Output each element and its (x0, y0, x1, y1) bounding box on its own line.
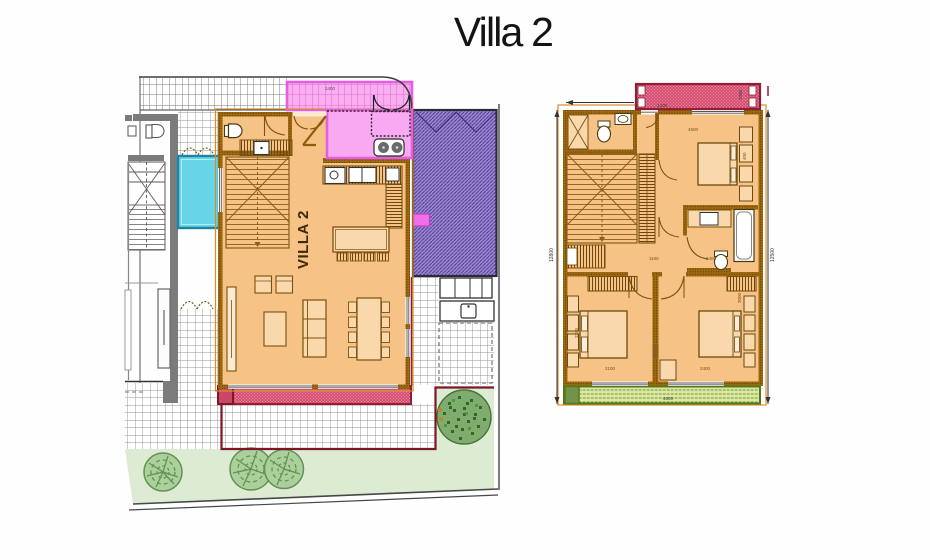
svg-text:2100: 2100 (605, 366, 616, 371)
svg-text:1100: 1100 (649, 256, 659, 261)
svg-text:4800: 4800 (663, 396, 674, 401)
svg-text:1400: 1400 (325, 86, 336, 91)
svg-text:2400: 2400 (700, 366, 711, 371)
svg-text:12800: 12800 (549, 248, 555, 262)
svg-text:12500: 12500 (770, 248, 776, 262)
svg-text:4500: 4500 (688, 127, 699, 132)
svg-text:400: 400 (742, 152, 747, 160)
svg-text:Villa 2: Villa 2 (454, 9, 552, 55)
svg-text:VILLA 2: VILLA 2 (295, 210, 312, 269)
svg-text:5400: 5400 (706, 256, 717, 261)
svg-text:3000: 3000 (737, 292, 742, 303)
svg-text:3000: 3000 (738, 89, 743, 100)
svg-text:3200: 3200 (574, 327, 579, 338)
svg-text:1400: 1400 (657, 103, 668, 108)
